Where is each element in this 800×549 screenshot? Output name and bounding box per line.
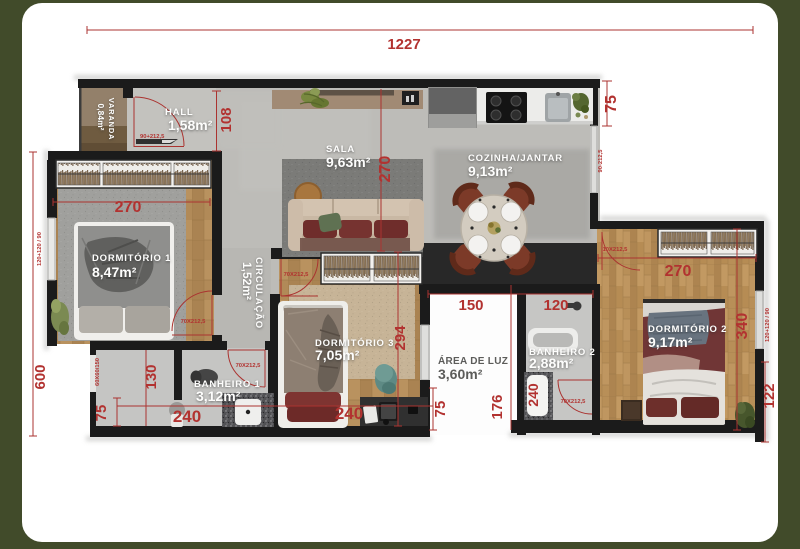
svg-text:70X212,5: 70X212,5 [284,272,310,278]
svg-text:9,17m²: 9,17m² [648,334,693,350]
svg-text:10X212,5: 10X212,5 [603,247,629,253]
svg-text:150: 150 [458,297,483,314]
svg-text:0,84m²: 0,84m² [96,104,106,131]
svg-text:70X212,5: 70X212,5 [181,319,207,325]
svg-text:270: 270 [115,199,142,216]
svg-text:9,13m²: 9,13m² [468,163,513,179]
svg-text:270: 270 [377,156,394,183]
svg-text:120+120 / 90: 120+120 / 90 [37,232,43,266]
svg-text:270: 270 [665,263,692,280]
svg-text:1227: 1227 [387,36,420,53]
svg-text:240: 240 [173,407,201,426]
svg-text:75: 75 [603,95,620,113]
svg-text:DORMITÓRIO 1: DORMITÓRIO 1 [92,252,171,264]
svg-text:70X212,5: 70X212,5 [236,363,262,369]
svg-text:60X60/150: 60X60/150 [95,358,101,386]
svg-text:8,47m²: 8,47m² [92,264,137,280]
svg-text:600: 600 [32,364,49,389]
svg-text:75: 75 [93,405,110,422]
svg-text:122: 122 [761,383,778,408]
svg-text:90+212,5: 90+212,5 [140,134,165,140]
svg-text:240: 240 [335,404,363,423]
svg-text:1,52m²: 1,52m² [240,262,254,300]
svg-text:120: 120 [543,297,568,314]
svg-text:75: 75 [432,401,449,418]
svg-text:9,63m²: 9,63m² [326,154,371,170]
svg-text:2,88m²: 2,88m² [529,355,574,371]
svg-text:3,12m²: 3,12m² [196,388,241,404]
svg-text:108: 108 [218,107,235,132]
svg-text:340: 340 [734,313,751,340]
svg-text:176: 176 [489,394,506,419]
svg-text:90-212,5: 90-212,5 [598,149,604,173]
svg-text:3,60m²: 3,60m² [438,366,483,382]
svg-text:120+120 / 90: 120+120 / 90 [765,308,771,342]
svg-text:1,58m²: 1,58m² [168,117,213,133]
svg-text:240: 240 [525,383,541,407]
svg-text:7,05m²: 7,05m² [315,347,360,363]
svg-text:VARANDA: VARANDA [107,98,116,141]
svg-text:130: 130 [143,364,160,389]
svg-text:70X212,5: 70X212,5 [561,399,587,405]
svg-text:294: 294 [392,325,409,351]
